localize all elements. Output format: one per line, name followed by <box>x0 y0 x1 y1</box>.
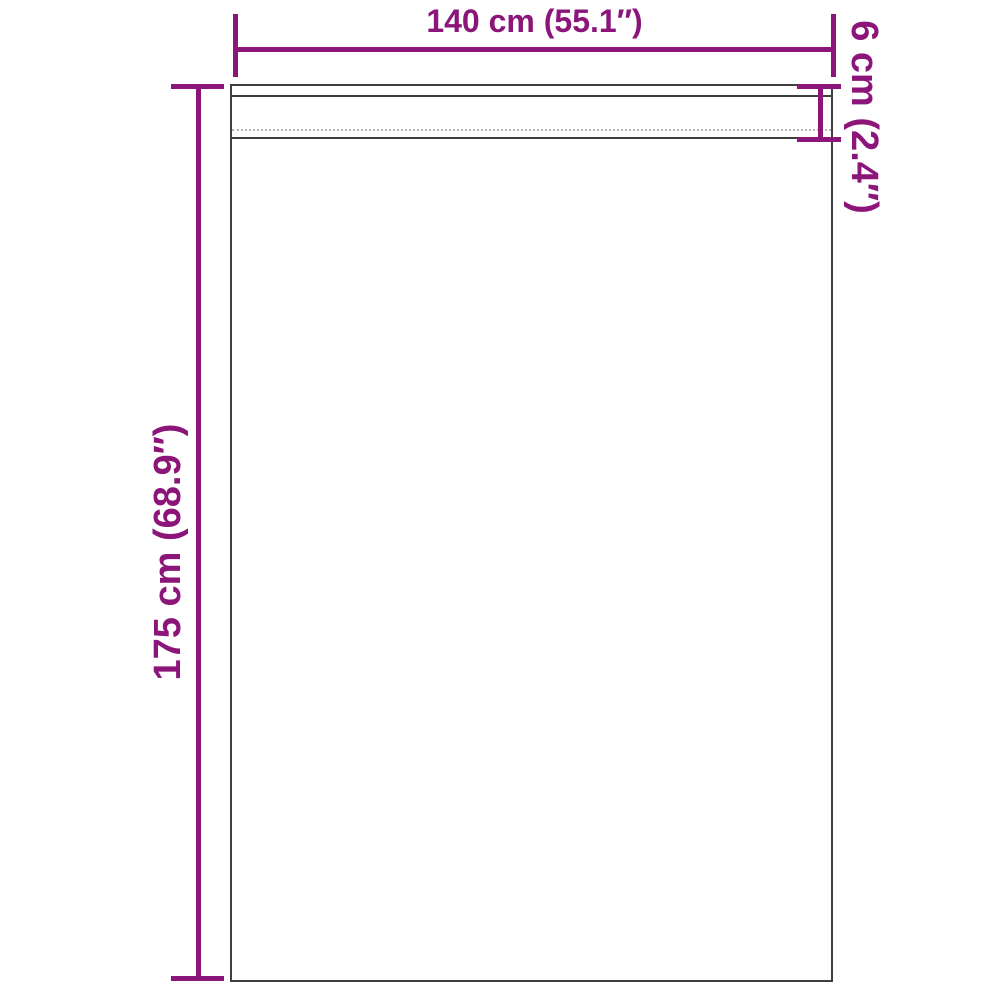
curtain-panel <box>230 84 833 982</box>
dimension-diagram: 140 cm (55.1″) 175 cm (68.9″) 6 cm (2.4″… <box>0 0 1000 1000</box>
rod-pocket-bottom-line <box>232 137 831 139</box>
width-dimension-line <box>233 47 836 52</box>
header-dimension-line <box>818 86 823 141</box>
height-dimension-label: 175 cm (68.9″) <box>148 342 192 762</box>
height-dimension-top-tick <box>171 84 224 89</box>
height-dimension-line <box>196 86 201 979</box>
header-dimension-bottom-tick <box>797 137 841 142</box>
header-dimension-label: 6 cm (2.4″) <box>840 0 884 237</box>
height-dimension-bottom-tick <box>171 976 224 981</box>
header-hem-line <box>232 95 831 97</box>
header-stitch-dotted-line <box>232 129 831 131</box>
width-dimension-label: 140 cm (55.1″) <box>233 4 836 39</box>
header-dimension-top-tick <box>797 84 841 89</box>
